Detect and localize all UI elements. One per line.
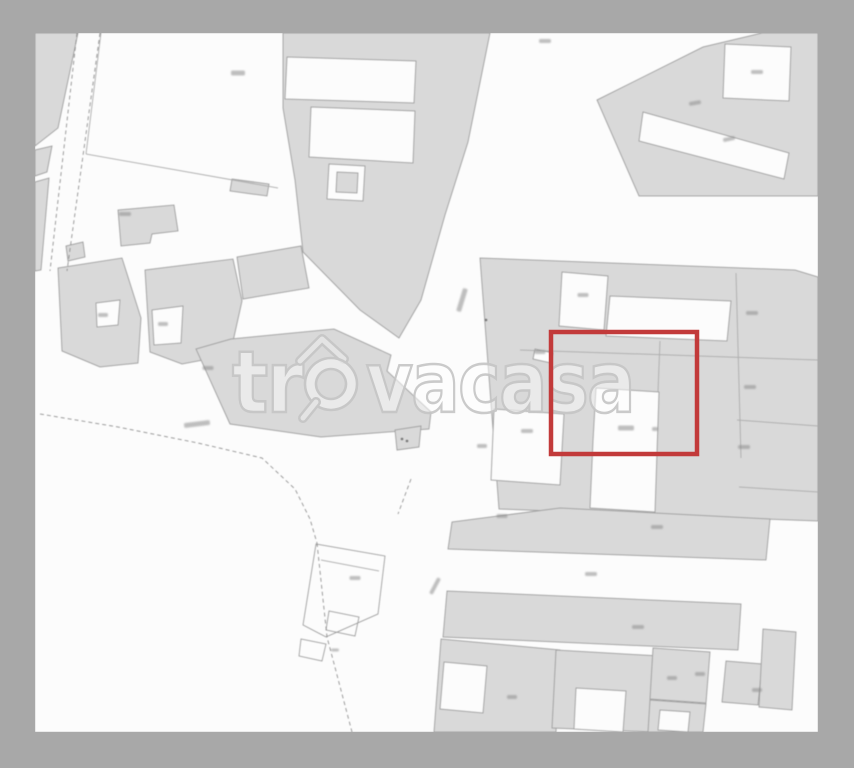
parcel-number-label bbox=[231, 71, 245, 76]
building-block bbox=[759, 629, 796, 710]
parcel-number-label bbox=[751, 70, 763, 74]
courtyard bbox=[574, 688, 626, 732]
parcel-number-label bbox=[477, 444, 487, 448]
parcel-number-label bbox=[497, 514, 508, 518]
courtyard bbox=[309, 107, 415, 163]
survey-point bbox=[485, 319, 488, 322]
parcel-number-label bbox=[158, 322, 168, 326]
survey-point bbox=[401, 438, 404, 441]
parcel-number-label bbox=[578, 293, 589, 297]
cadastral-map-image: tr vacasa bbox=[0, 0, 854, 768]
parcel-number-label bbox=[98, 313, 108, 317]
courtyard bbox=[440, 662, 487, 713]
parcel-number-label bbox=[331, 649, 339, 652]
survey-point bbox=[406, 440, 409, 443]
parcel-number-label bbox=[738, 445, 750, 449]
watermark: tr vacasa bbox=[232, 333, 634, 433]
parcel-number-label bbox=[651, 525, 663, 529]
parcel-number-label bbox=[585, 572, 597, 576]
building-inset bbox=[336, 172, 358, 193]
building-block bbox=[722, 661, 762, 705]
parcel-number-label bbox=[203, 366, 214, 370]
parcel-number-label bbox=[667, 676, 677, 680]
parcel-number-label bbox=[746, 311, 758, 315]
parcel-number-label bbox=[119, 212, 131, 216]
courtyard bbox=[658, 710, 690, 732]
parcel-number-label bbox=[350, 576, 361, 580]
parcel-number-label bbox=[539, 39, 551, 43]
parcel-number-label bbox=[744, 385, 756, 389]
watermark-text-left: tr bbox=[232, 333, 304, 433]
parcel-number-label bbox=[695, 672, 705, 676]
parcel-number-label bbox=[507, 695, 517, 699]
cadastral-map-viewport: tr vacasa bbox=[0, 0, 854, 768]
parcel-number-label bbox=[652, 427, 658, 431]
parcel-number-label bbox=[752, 688, 762, 692]
courtyard bbox=[285, 57, 416, 103]
parcel-number-label bbox=[632, 625, 644, 629]
courtyard bbox=[559, 272, 608, 330]
watermark-text-right: vacasa bbox=[366, 333, 634, 433]
